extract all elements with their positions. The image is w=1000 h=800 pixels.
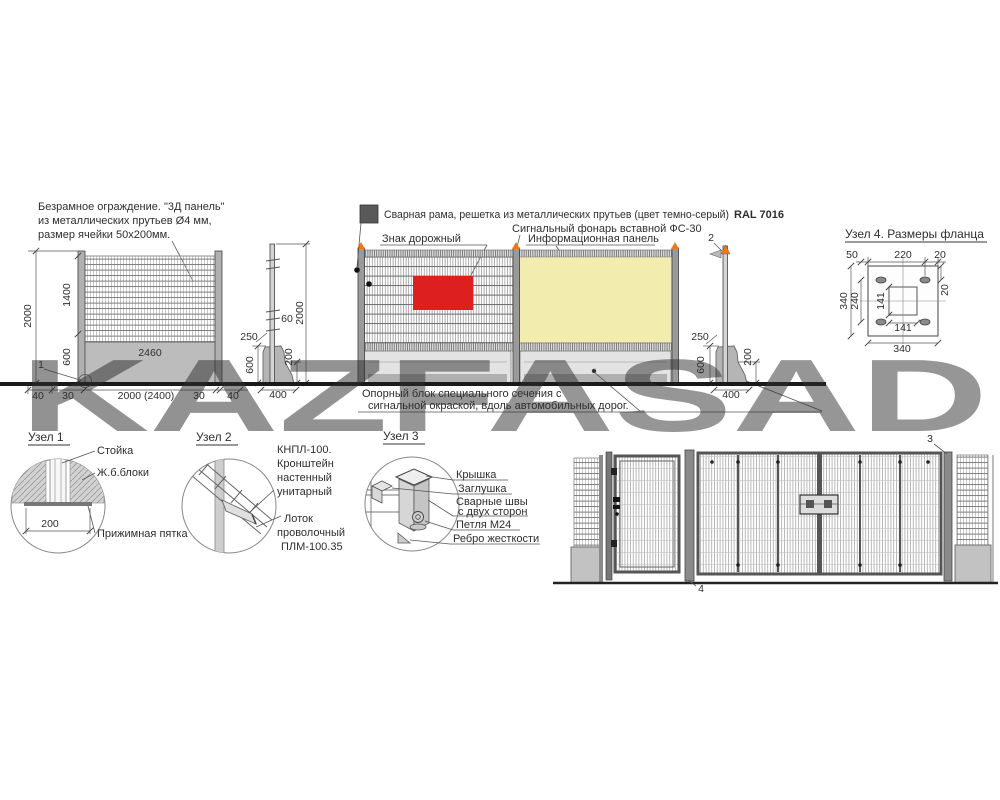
dim-node1-200: 200 <box>41 518 59 530</box>
info-panel-label: Информационная панель <box>528 233 659 245</box>
fence-description-line1: Безрамное ограждение. "3Д панель" <box>38 201 225 213</box>
watermark-kaz: KAZ <box>20 338 388 453</box>
gate-left-fence-block <box>571 547 602 583</box>
node1-internals <box>12 448 104 506</box>
fastener-dot-2 <box>366 281 372 287</box>
gate-right-fence-block <box>955 545 991 583</box>
item-callout-4: 4 <box>698 583 704 595</box>
gate-mid-post <box>685 450 694 581</box>
dim-bracket-60: 60 <box>281 313 293 325</box>
legend-color-swatch <box>360 205 378 223</box>
node3-label-rib: Ребро жесткости <box>453 533 539 545</box>
top-rail-right <box>519 250 672 257</box>
node2-label-bracket2: Кронштейн <box>277 458 334 470</box>
legend-ral-code: RAL 7016 <box>734 209 784 221</box>
node2-label-bracket3: настенный <box>277 472 332 484</box>
node3-label-plug: Заглушка <box>458 483 507 495</box>
node1-label-blocks: Ж.б.блоки <box>97 467 149 479</box>
road-sign-red <box>413 276 473 310</box>
wicket-hinge-bottom <box>611 540 617 547</box>
loop-washer <box>410 524 426 530</box>
node4-flange-detail: Узел 4. Размеры фланца 50 22 <box>838 227 987 355</box>
drawing-canvas: Безрамное ограждение. "3Д панель" из мет… <box>0 0 1000 800</box>
technical-drawing-sheet: Безрамное ограждение. "3Д панель" из мет… <box>0 0 1000 800</box>
dim-mesh-height: 1400 <box>61 283 73 307</box>
fence-description-line3: размер ячейки 50x200мм. <box>38 229 170 241</box>
dim-flange-240: 240 <box>849 292 861 310</box>
road-sign-label: Знак дорожный <box>382 233 461 245</box>
watermark-fasad: FASAD <box>388 338 988 453</box>
dim-total-height: 2000 <box>22 304 34 328</box>
dim-flange-220: 220 <box>894 249 912 261</box>
node2-label-tray3: ПЛМ-100.35 <box>281 541 343 553</box>
top-rail-left <box>364 250 513 257</box>
gate-left-fence-post <box>599 455 603 583</box>
item-callout-2: 2 <box>708 232 714 244</box>
node4-title: Узел 4. Размеры фланца <box>845 227 984 241</box>
dim-flange-20r: 20 <box>939 284 951 296</box>
lantern-left <box>357 242 365 249</box>
watermark: KAZ FASAD <box>20 338 988 453</box>
gate-right-post <box>944 452 952 581</box>
legend-text: Сварная рама, решетка из металлических п… <box>384 209 729 221</box>
side2-lantern-bracket <box>710 250 721 258</box>
dim-flange-20top: 20 <box>934 249 946 261</box>
gate-left-fence-mesh <box>574 458 600 547</box>
gate-elevation: 3 4 <box>553 433 998 595</box>
node2-label-tray1: Лоток <box>284 513 313 525</box>
dim-flange-50: 50 <box>846 249 858 261</box>
dim-flange-141v: 141 <box>875 292 887 310</box>
fence-description-line2: из металлических прутьев Ø4 мм, <box>38 215 212 227</box>
dim-flange-141h: 141 <box>894 322 912 334</box>
node1-label-heel: Прижимная пятка <box>97 528 188 540</box>
side2-lantern <box>721 245 730 254</box>
node2-label-bracket4: унитарный <box>277 486 332 498</box>
node3-label-cap: Крышка <box>456 469 497 481</box>
mesh-panel <box>85 256 215 342</box>
gate-right-fence-mesh <box>957 455 988 545</box>
dim-side-height: 2000 <box>294 301 306 325</box>
lantern-middle <box>512 242 520 249</box>
node2-label-tray2: проволочный <box>277 527 345 539</box>
info-panel-yellow <box>519 257 672 343</box>
node3-label-weld2: с двух сторон <box>458 506 527 518</box>
wicket-door <box>615 456 679 572</box>
wicket-lock <box>613 497 620 502</box>
gate-lock-box <box>800 495 838 514</box>
node3-label-loop: Петля М24 <box>456 519 511 531</box>
lantern-right <box>671 242 679 249</box>
fastener-dot-1 <box>354 267 360 273</box>
loop-nut <box>413 512 424 523</box>
wicket-hinge-top <box>611 468 617 475</box>
